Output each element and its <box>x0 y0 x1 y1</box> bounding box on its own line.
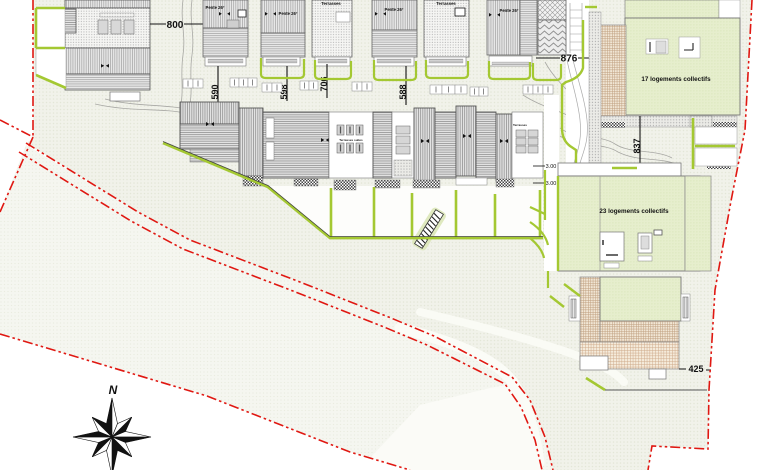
svg-text:588: 588 <box>398 84 408 99</box>
svg-text:3.00: 3.00 <box>546 181 557 187</box>
svg-text:Terrasses: Terrasses <box>436 1 456 6</box>
svg-text:Terrasses: Terrasses <box>321 1 341 6</box>
svg-text:590: 590 <box>210 84 220 99</box>
svg-text:Terrasses: Terrasses <box>513 123 527 127</box>
svg-text:837: 837 <box>632 138 642 153</box>
svg-text:17 logements collectifs: 17 logements collectifs <box>641 76 711 83</box>
svg-text:876: 876 <box>561 54 578 65</box>
svg-text:23 logements collectifs: 23 logements collectifs <box>599 208 669 215</box>
svg-text:Pente 26°: Pente 26° <box>206 5 225 10</box>
svg-text:Pente 26°: Pente 26° <box>385 7 404 12</box>
svg-text:3.00: 3.00 <box>546 164 557 170</box>
svg-text:800: 800 <box>167 20 184 31</box>
svg-text:Pente 26°: Pente 26° <box>500 8 519 13</box>
svg-text:Pente 26°: Pente 26° <box>279 11 298 16</box>
svg-text:425: 425 <box>688 364 703 374</box>
svg-text:N: N <box>109 383 118 397</box>
svg-text:Terrasses suites: Terrasses suites <box>339 138 363 142</box>
